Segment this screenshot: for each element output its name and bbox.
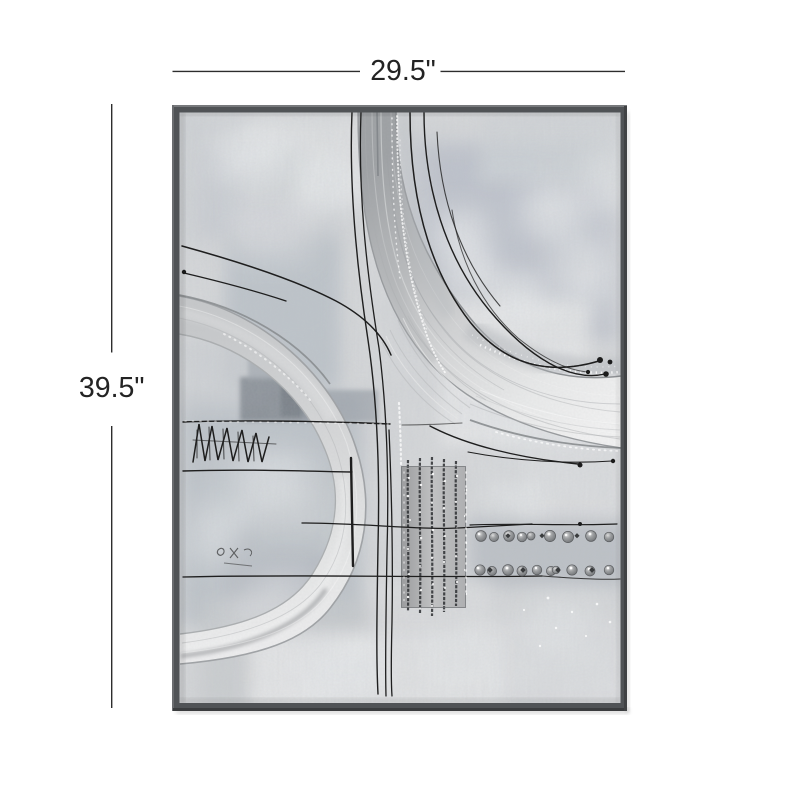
svg-text:39.5": 39.5" [79, 372, 145, 404]
svg-text:29.5": 29.5" [370, 55, 436, 87]
